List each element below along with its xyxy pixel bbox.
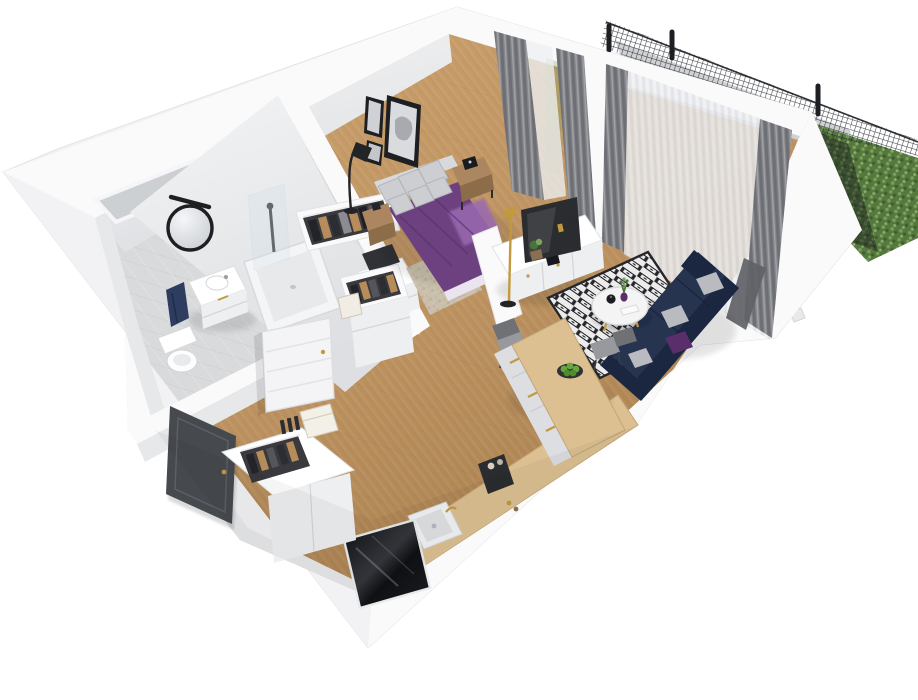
plant-leaves-icon (536, 239, 542, 245)
apple-icon (570, 370, 577, 377)
sprig-leaf (625, 279, 628, 282)
machine-dial (497, 459, 503, 465)
gold-knob-icon (526, 274, 529, 277)
clock-face-dot (469, 161, 472, 164)
apple-icon (567, 363, 574, 370)
machine-dial (488, 463, 495, 470)
black-teapot-icon (606, 294, 615, 303)
sprig-leaf (622, 277, 625, 280)
wall-art (364, 95, 421, 168)
purple-vase (620, 292, 627, 301)
apple-icon (564, 370, 571, 377)
table-top (592, 287, 648, 325)
teapot-lid-dot (610, 296, 612, 298)
gray-curtain-pleats (602, 64, 628, 252)
apartment-3d-scene (0, 0, 918, 700)
floor-plan-render (0, 0, 918, 700)
art-print-small-top (367, 100, 381, 134)
faucet-icon (224, 275, 228, 279)
gold-knob-icon (556, 263, 559, 266)
tub-drain-icon (290, 285, 296, 289)
book-stack (338, 293, 362, 319)
toilet-seat-inner (173, 354, 191, 366)
shower-glass-screen (248, 184, 290, 270)
lamp-base (500, 301, 516, 308)
spice-jar-icon (514, 507, 519, 512)
door-handle-gold-icon (321, 350, 325, 354)
lamp-base (344, 208, 358, 214)
sprig-leaf (619, 280, 622, 283)
